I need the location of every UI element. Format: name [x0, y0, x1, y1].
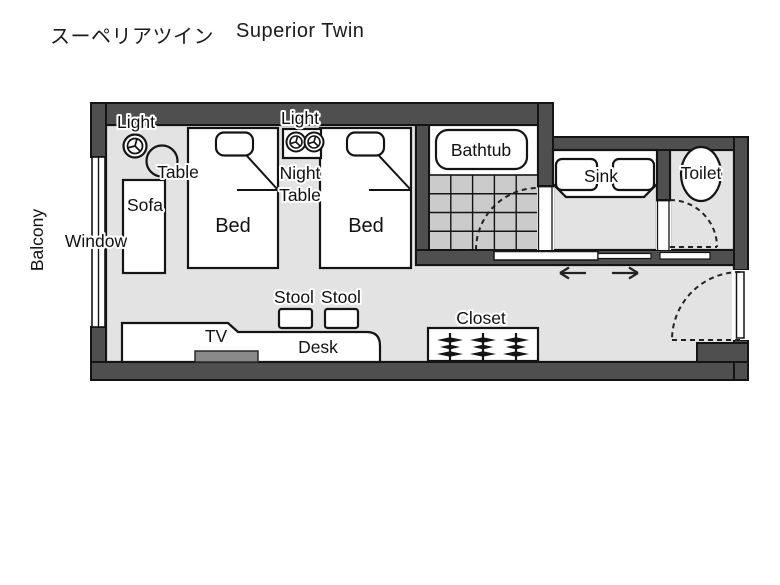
toilet-label: Toilet	[681, 163, 722, 183]
bed-left-label: Bed	[215, 215, 251, 237]
right-wall-upper	[734, 137, 748, 270]
light-center-label: Light	[281, 108, 319, 128]
sink-basin	[613, 159, 654, 190]
night-table	[283, 129, 324, 158]
closet-label: Closet	[456, 308, 506, 328]
bed-left	[188, 128, 278, 268]
bathroom-doorway	[537, 186, 554, 250]
toilet-doorway	[656, 200, 671, 250]
stool-left-label: Stool	[274, 287, 314, 307]
window-label: Window	[65, 231, 128, 251]
desk-label: Desk	[298, 337, 338, 357]
stool-right	[325, 309, 358, 328]
bed-right-label: Bed	[348, 215, 384, 237]
bed-right	[320, 128, 411, 268]
stool-left	[279, 309, 312, 328]
lamp-icon	[305, 133, 324, 152]
sink-label: Sink	[584, 166, 618, 186]
balcony-label: Balcony	[27, 209, 47, 272]
tv-set	[195, 351, 258, 362]
entry-door	[732, 270, 750, 340]
floorplan-page: スーペリアツイン Superior Twin	[0, 0, 780, 585]
lamp-icon	[124, 135, 147, 158]
night-table-label-line2: Table	[279, 185, 321, 205]
bathroom-right-wall	[538, 103, 553, 186]
night-table-label-line1: Night	[280, 163, 321, 183]
table-label: Table	[157, 162, 199, 182]
bathroom-tile-floor	[429, 175, 538, 250]
bathtub-label: Bathtub	[451, 140, 511, 160]
washroom-top-wall	[553, 137, 748, 150]
sink-toilet-divider-wall	[657, 150, 670, 200]
sofa	[123, 180, 165, 273]
pillow	[347, 133, 384, 156]
bathroom-left-wall	[416, 125, 429, 265]
tv-label: TV	[205, 326, 228, 346]
entry-step	[697, 343, 748, 362]
lamp-icon	[287, 133, 306, 152]
light-left-label: Light	[117, 112, 155, 132]
pillow	[216, 133, 253, 156]
closet	[428, 328, 538, 361]
floorplan-drawing: Balcony Window Light Light Table Sofa Be…	[0, 0, 780, 585]
stool-right-label: Stool	[321, 287, 361, 307]
sofa-label: Sofa	[127, 195, 163, 215]
